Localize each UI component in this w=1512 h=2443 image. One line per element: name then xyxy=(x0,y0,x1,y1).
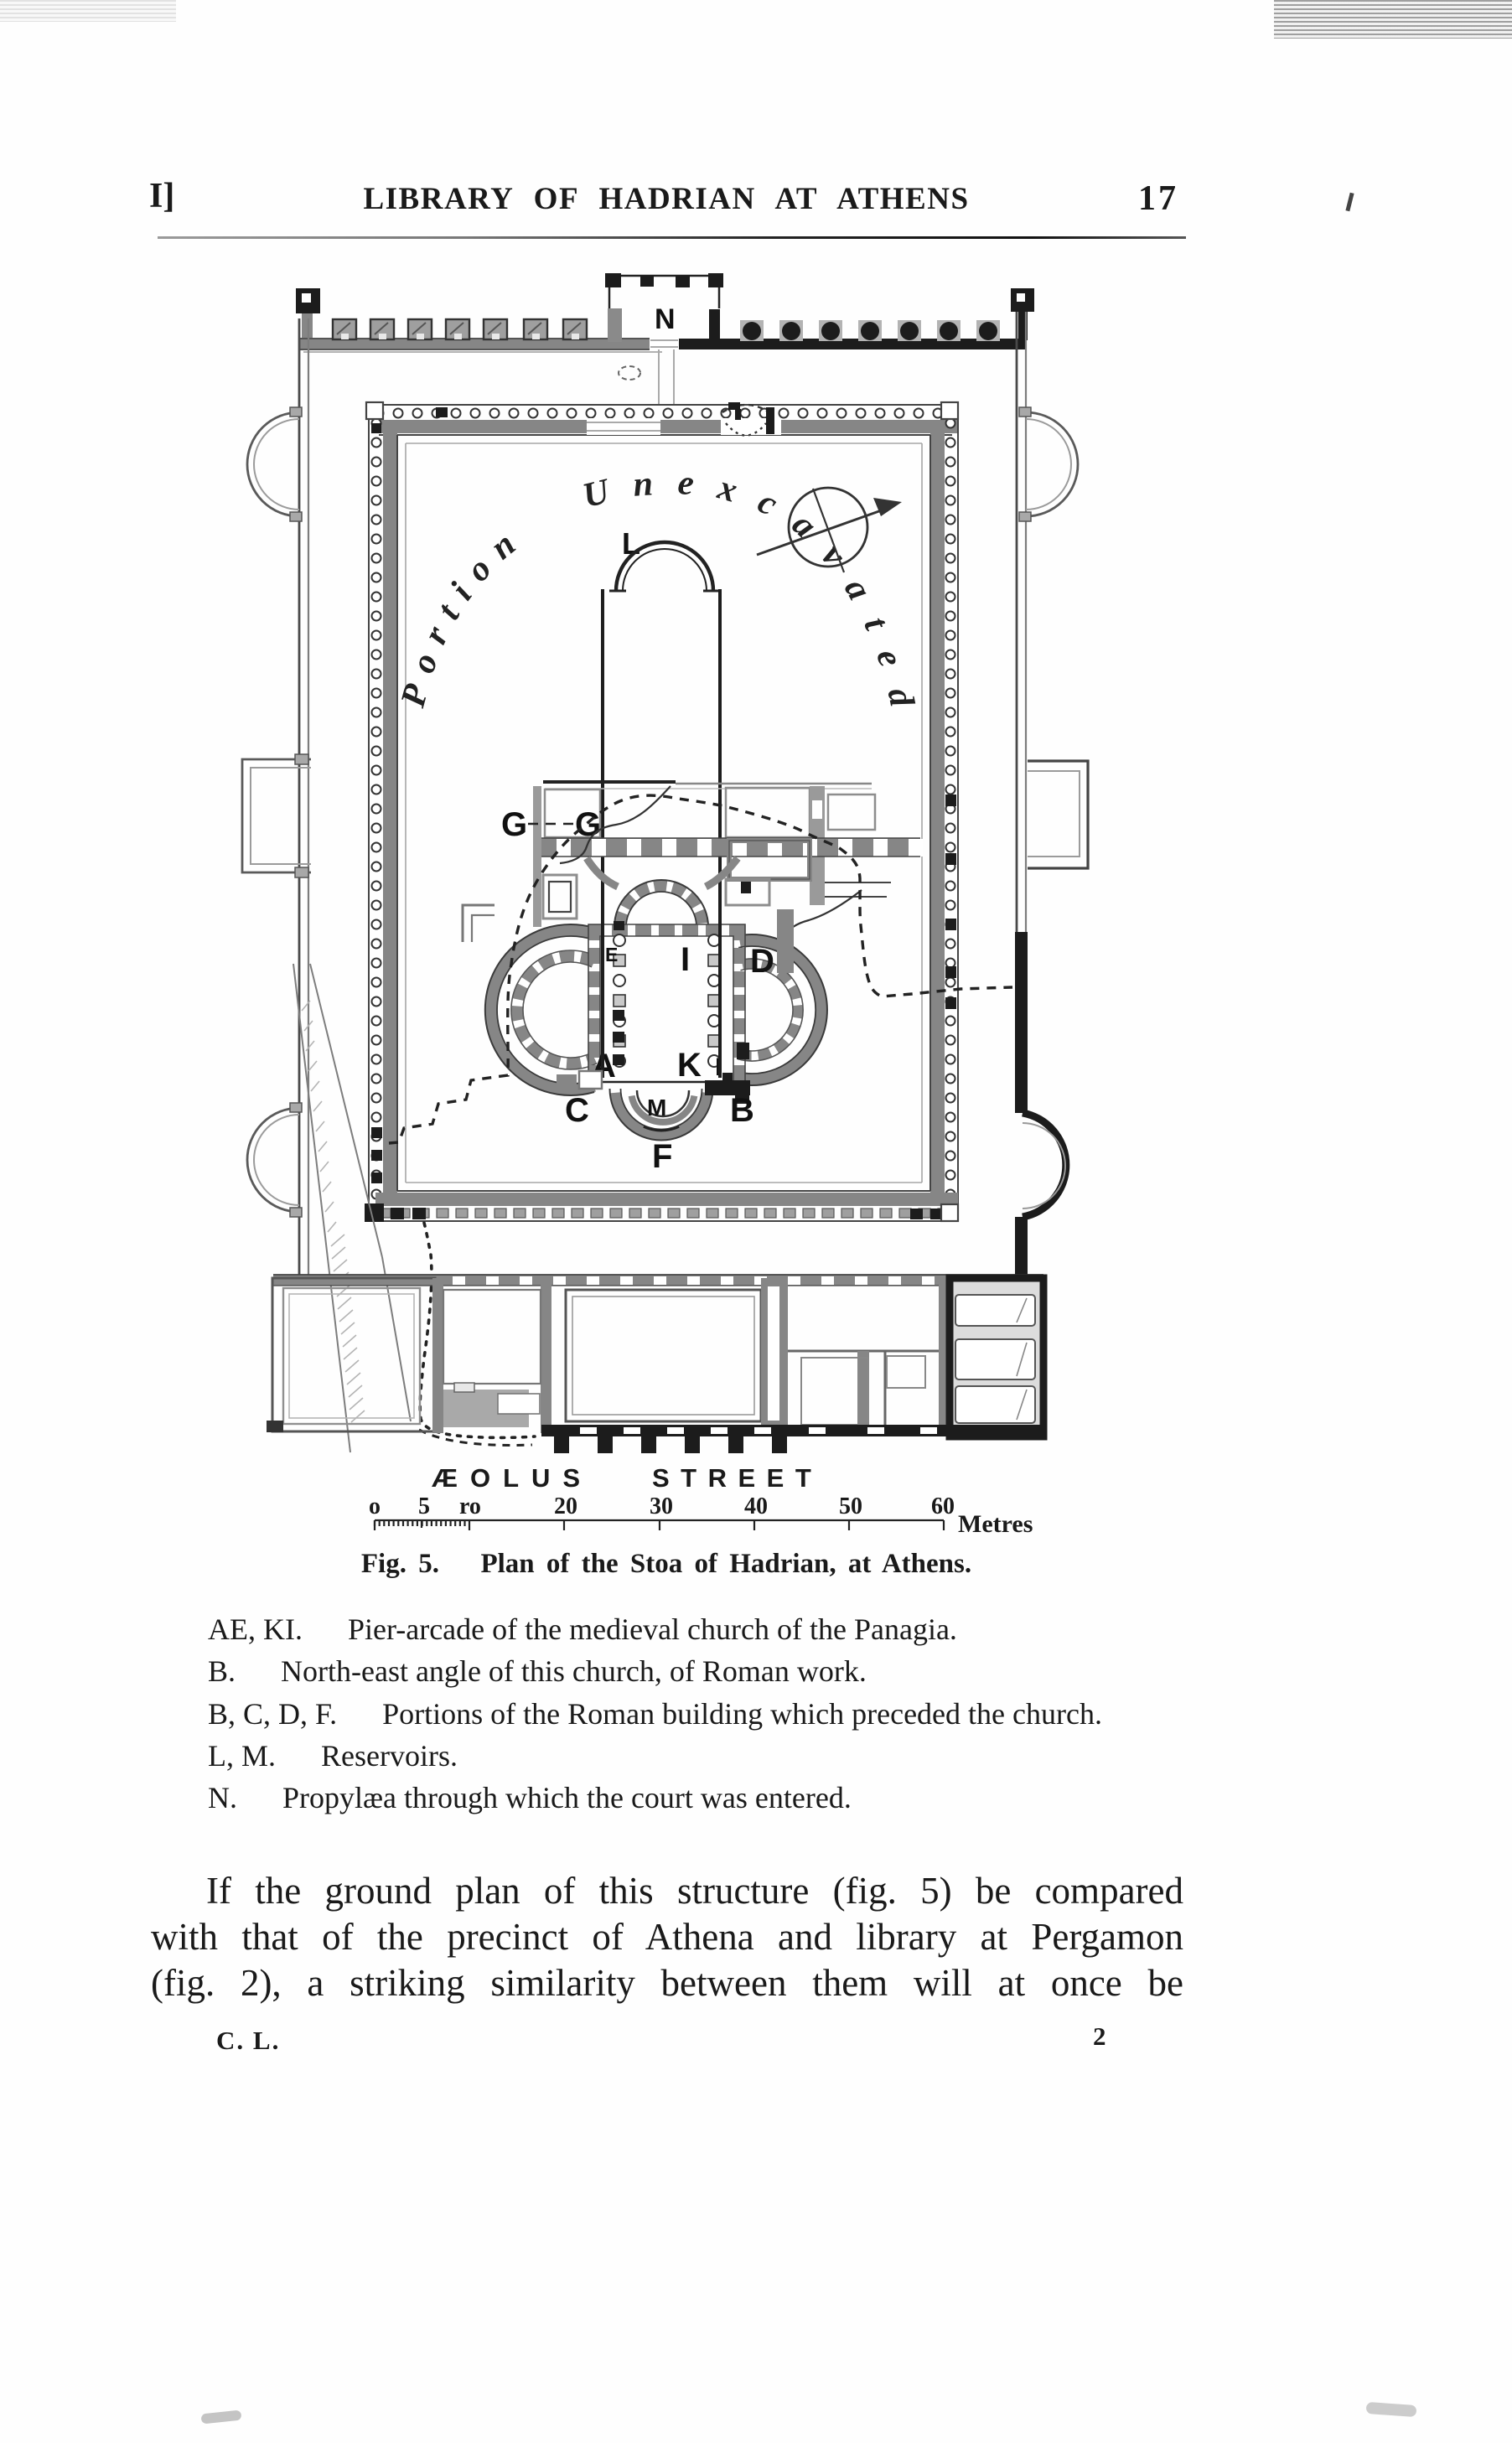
svg-text:ro: ro xyxy=(459,1493,481,1519)
svg-text:30: 30 xyxy=(650,1493,673,1519)
svg-text:K: K xyxy=(677,1047,702,1084)
svg-text:20: 20 xyxy=(554,1493,577,1519)
svg-text:E: E xyxy=(605,944,618,965)
svg-text:I: I xyxy=(681,941,690,978)
svg-text:Portion: Portion xyxy=(393,516,533,712)
svg-text:M: M xyxy=(647,1095,666,1121)
svg-text:50: 50 xyxy=(839,1493,862,1519)
svg-text:40: 40 xyxy=(744,1493,768,1519)
svg-text:F: F xyxy=(652,1138,672,1175)
svg-text:STREET: STREET xyxy=(652,1463,822,1493)
svg-text:Metres: Metres xyxy=(958,1510,1033,1538)
svg-text:D: D xyxy=(750,943,774,980)
svg-text:Unexcavated: Unexcavated xyxy=(579,463,926,733)
svg-text:B: B xyxy=(730,1092,754,1129)
svg-text:G: G xyxy=(501,806,527,843)
svg-text:o: o xyxy=(369,1493,381,1519)
svg-text:5: 5 xyxy=(418,1493,430,1519)
svg-text:C: C xyxy=(565,1092,589,1129)
svg-text:ÆOLUS: ÆOLUS xyxy=(432,1463,593,1493)
svg-text:N: N xyxy=(655,303,676,335)
svg-text:60: 60 xyxy=(931,1493,955,1519)
